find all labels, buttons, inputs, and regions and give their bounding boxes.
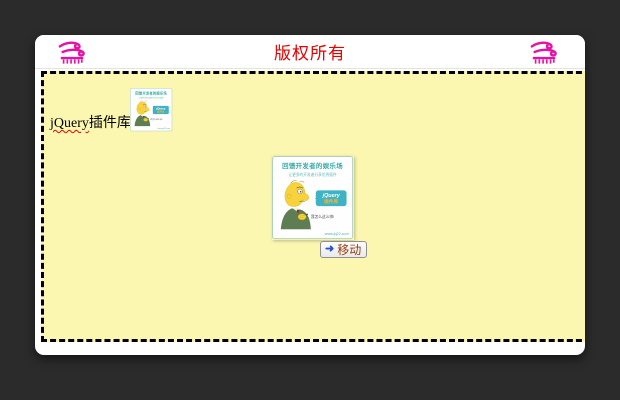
- mascot-cartoon: [276, 179, 320, 230]
- card-subtitle: 让更多的开发者分享优秀插件: [273, 172, 352, 177]
- card-note: 我怎么这么帅!: [150, 118, 162, 121]
- speech-bubble: jQuery 插件库: [316, 190, 347, 206]
- page-title: 版权所有: [35, 39, 585, 64]
- header-bar: 版权所有: [35, 35, 585, 69]
- drop-zone: jQuery插件库 回馈开发者的娱乐场 让更多的开发者分享优秀插件: [41, 71, 585, 342]
- card-tagline: 回馈开发者的娱乐场: [131, 91, 172, 96]
- arrow-right-icon: ➜: [325, 244, 334, 255]
- wind-icon: [529, 38, 559, 66]
- move-button-label: 移动: [337, 244, 361, 256]
- thumbnail-image[interactable]: 回馈开发者的娱乐场 让更多的开发者分享优秀插件: [130, 88, 173, 132]
- bubble-text-zh: 插件库: [157, 110, 164, 113]
- jq22-promo-card: 回馈开发者的娱乐场 让更多的开发者分享优秀插件: [130, 88, 172, 131]
- card-site-url: www.jq22.com: [325, 232, 349, 236]
- content-panel: 版权所有 jQuery插件库 回馈开发者的娱乐场 让更多的开发者分享优秀插件: [35, 35, 585, 355]
- bubble-text-zh: 插件库: [324, 199, 338, 204]
- label-zh: 插件库: [89, 116, 131, 131]
- drop-zone-label: jQuery插件库: [50, 112, 131, 132]
- card-subtitle: 让更多的开发者分享优秀插件: [131, 96, 172, 99]
- draggable-image[interactable]: 回馈开发者的娱乐场 让更多的开发者分享优秀插件: [272, 156, 354, 240]
- speech-bubble: jQuery 插件库: [153, 106, 169, 114]
- card-tagline: 回馈开发者的娱乐场: [273, 161, 352, 170]
- wind-icon: [57, 38, 87, 66]
- card-site-url: www.jq22.com: [157, 128, 169, 130]
- label-en: jQuery: [50, 116, 89, 131]
- card-note: 我怎么这么帅!: [311, 214, 334, 219]
- move-button[interactable]: ➜ 移动: [320, 241, 367, 258]
- jq22-promo-card: 回馈开发者的娱乐场 让更多的开发者分享优秀插件: [272, 156, 353, 239]
- mascot-cartoon: [132, 100, 155, 126]
